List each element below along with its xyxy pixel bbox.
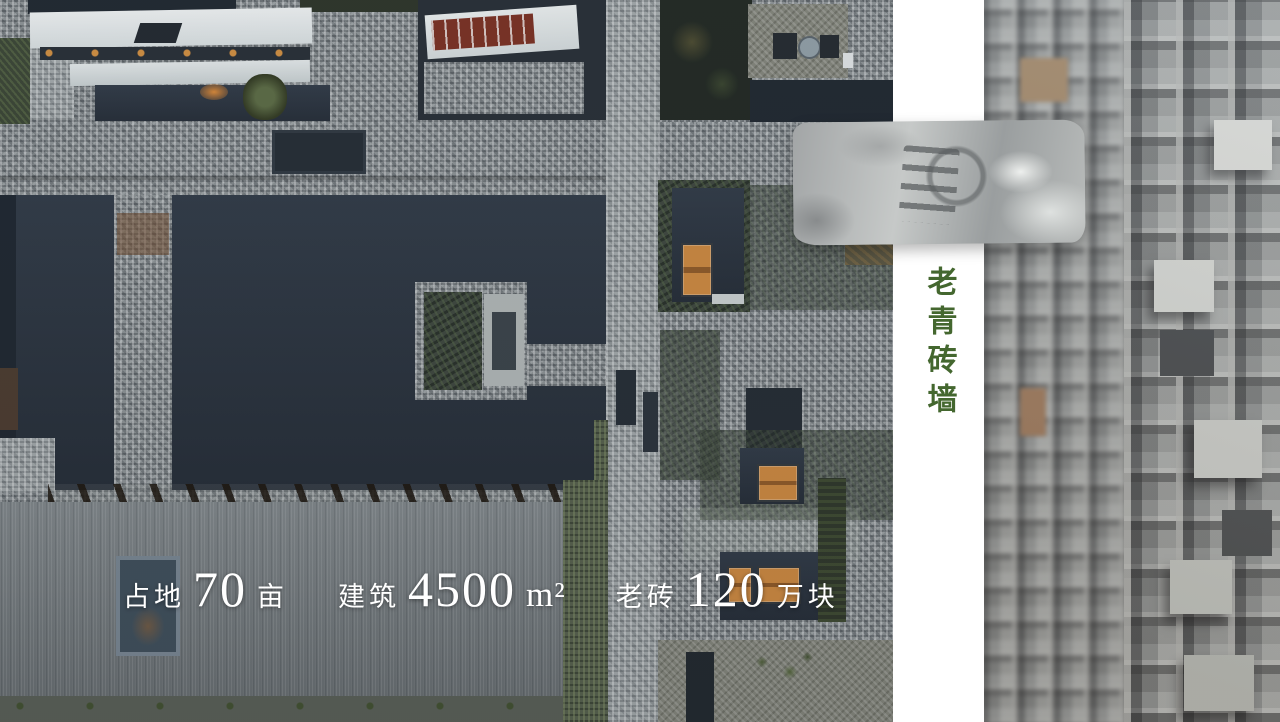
stat-value: 4500 [408,560,516,618]
rust-patch [117,213,169,255]
accent-brick-tan-2 [1020,388,1046,436]
aerial-courtyard-photo: 占地 70 亩 建筑 4500 m² 老砖 120 万块 [0,0,893,722]
eave-lights [40,47,310,60]
doorway-band [750,80,893,122]
dark-walkway [686,652,714,722]
bench-right [820,35,839,58]
path-plants [748,642,818,692]
stat-prefix: 占地 [123,575,185,614]
stat-item-area: 占地 70 亩 [123,560,288,618]
accent-brick-dark-1 [1160,330,1214,376]
accent-brick-light-3 [1194,420,1262,478]
stat-value: 70 [193,560,247,618]
slide: 占地 70 亩 建筑 4500 m² 老砖 120 万块 老青砖墙 [0,0,1280,722]
stat-unit: m² [526,575,566,615]
accent-brick-light-2 [1154,260,1214,312]
band-shadow [0,176,606,180]
pier-bridge [527,344,608,386]
hedge-left [0,38,30,124]
path-door-1 [616,370,636,425]
stat-unit: 亩 [257,575,288,614]
round-table [798,36,821,59]
white-marker [843,53,853,68]
brick-wall-photo [984,0,1280,722]
hedge-top [300,0,418,12]
pier-planter [424,292,482,390]
stat-item-building: 建筑 4500 m² [338,560,566,618]
pavilion-window [492,312,516,370]
stat-prefix: 老砖 [616,575,678,614]
tree-court [652,0,752,120]
brick-inscription [898,145,960,225]
label-column: 老青砖墙 [893,0,984,722]
pond [172,195,606,490]
accent-brick-light-4 [1170,560,1232,614]
lantern-glow [200,84,228,100]
accent-brick-tan-1 [1020,58,1068,102]
path-door-2 [643,392,658,452]
brown-patch [0,368,18,430]
court-bush [243,74,287,120]
roof-skylight [134,23,182,43]
ridge-ornaments [48,484,563,504]
vertical-label: 老青砖墙 [917,266,961,422]
stats-line: 占地 70 亩 建筑 4500 m² 老砖 120 万块 [123,560,889,618]
center-building-court [424,62,584,114]
accent-brick-light-1 [1214,120,1272,170]
sill-a [712,294,744,304]
roof-gravel-edge [0,696,563,722]
stat-value: 120 [686,560,767,618]
band-inset [272,130,366,174]
stat-prefix: 建筑 [338,575,400,614]
accent-brick-light-5 [1184,655,1254,711]
accent-brick-dark-2 [1222,510,1272,556]
window-b [757,464,799,502]
left-wall [0,438,55,493]
bench-left [773,33,797,59]
window-a [681,243,713,297]
stat-unit: 万块 [777,575,839,614]
old-brick-photo [792,119,1085,245]
stat-item-bricks: 老砖 120 万块 [616,560,839,618]
